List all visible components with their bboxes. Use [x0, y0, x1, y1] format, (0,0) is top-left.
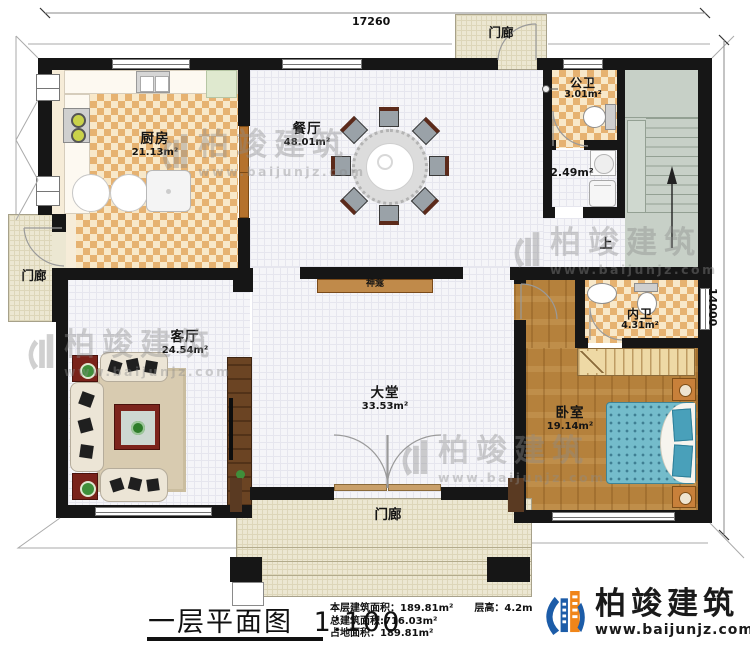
living-name: 客厅	[145, 330, 225, 345]
plan-title-underline	[147, 637, 323, 641]
dining-name: 餐厅	[262, 122, 352, 137]
bedroom-area: 19.14m²	[530, 421, 610, 432]
stairs-return-flight	[627, 120, 646, 213]
wall-porch-left-jamb	[52, 214, 66, 232]
porch-top-label: 门廊	[474, 26, 528, 40]
pillow	[672, 408, 693, 441]
wall-shrine	[300, 267, 463, 279]
story-height-label: 层高：	[474, 603, 504, 614]
footprint-label: 占地面积：	[330, 628, 380, 639]
brand-company: 柏竣建筑	[595, 589, 750, 620]
plant-stand	[72, 473, 98, 500]
plan-title-text: 一层平面图	[148, 607, 293, 638]
kitchen-cabinet-green	[206, 70, 237, 98]
window-left-bay	[36, 74, 60, 101]
wall-bottom-hall	[250, 487, 334, 500]
wall-kitchen-dining	[238, 218, 250, 268]
living-area: 24.54m²	[145, 345, 225, 356]
inner-bath-area: 4.31m²	[612, 321, 668, 331]
kitchen-stove	[63, 108, 90, 143]
porch-left-door-gap	[52, 232, 66, 268]
wall-top	[38, 58, 498, 70]
kitchen-name: 厨房	[110, 132, 200, 147]
bed	[606, 402, 696, 484]
window-bedroom-bottom	[552, 512, 675, 521]
kitchen-island-table	[72, 174, 110, 212]
wall-tv-stub	[233, 276, 253, 292]
coffee-table	[114, 404, 160, 450]
window-kitchen-top	[112, 59, 190, 69]
brand-block: 柏竣建筑 www.baijunjz.com	[543, 584, 750, 642]
living-label: 客厅 24.54m²	[145, 330, 225, 356]
nightstand	[672, 486, 696, 508]
floor-area-label: 本层建筑面积：	[330, 603, 400, 614]
wardrobe	[577, 348, 695, 376]
dining-chair	[331, 156, 351, 176]
porch-column	[487, 557, 530, 582]
public-bath-label: 公卫 3.01m²	[556, 77, 610, 101]
info-line-footprint: 占地面积：189.81m²	[330, 628, 533, 641]
utility-label: 2.49m²	[548, 167, 596, 179]
window-dining-top	[282, 59, 362, 69]
brand-logo-icon	[26, 330, 58, 374]
porch-step-line	[237, 547, 531, 548]
plant-stand	[72, 355, 98, 382]
brand-website: www.baijunjz.com	[595, 622, 750, 638]
dimension-right: 14000	[706, 288, 719, 326]
footprint-value: 189.81m²	[380, 628, 433, 639]
dining-chair	[429, 156, 449, 176]
wall-inner-bath-left	[575, 280, 585, 338]
inner-bath-label: 内卫 4.31m²	[612, 308, 668, 332]
stairs-up-label: 上	[596, 238, 616, 252]
hall-name: 大堂	[345, 386, 425, 401]
wall-public-bath-south	[584, 140, 618, 150]
kitchen-sliding-door	[239, 126, 249, 218]
window-left-bay	[36, 176, 60, 206]
wall-utility-south	[543, 207, 555, 218]
kitchen-sink	[136, 71, 170, 93]
info-line-floor-area: 本层建筑面积：189.81m² 层高：4.2m	[330, 603, 533, 616]
wall-inner-bath-south	[575, 338, 588, 348]
brand-logo-icon	[543, 584, 587, 642]
bedroom-label: 卧室 19.14m²	[530, 406, 610, 432]
plant-icon	[131, 421, 145, 435]
inner-bath-sink	[587, 283, 617, 304]
hall-floor	[252, 267, 514, 500]
kitchen-label: 厨房 21.13m²	[110, 132, 200, 158]
dining-table-center	[377, 154, 393, 170]
porch-column	[230, 557, 262, 582]
wall-inner-bath-south	[622, 338, 698, 348]
total-area-label: 总建筑面积:	[330, 616, 384, 627]
porch-column-post	[508, 478, 524, 512]
floor-area-value: 189.81m²	[400, 603, 453, 614]
info-line-total-area: 总建筑面积:716.03m²	[330, 616, 533, 629]
sofa-top	[100, 352, 168, 382]
sofa-bottom	[100, 468, 168, 502]
wall-kitchen-dining	[238, 70, 250, 126]
public-bath-toilet-tank	[605, 104, 616, 130]
dining-area: 48.01m²	[262, 137, 352, 148]
wall-stairs-left	[617, 70, 625, 215]
public-bath-area: 3.01m²	[556, 90, 610, 100]
wall-kitchen-south	[56, 268, 253, 280]
plan-info-block: 本层建筑面积：189.81m² 层高：4.2m 总建筑面积:716.03m² 占…	[330, 603, 533, 641]
window-living-bottom	[95, 507, 212, 516]
hall-door-panel	[334, 484, 387, 491]
nightstand	[672, 378, 696, 401]
wall-bedroom-left	[514, 267, 526, 284]
kitchen-area: 21.13m²	[110, 147, 200, 158]
porch-left-label: 门廊	[12, 269, 56, 283]
dimension-top: 17260	[352, 15, 390, 28]
shrine-label: 神龛	[352, 280, 398, 290]
stairs-treads	[646, 118, 698, 213]
porch-column-post	[230, 478, 242, 512]
story-height-value: 4.2m	[504, 603, 532, 614]
inner-bath-toilet-tank	[634, 283, 658, 292]
hall-door-panel	[388, 484, 441, 491]
wall-mid-horizontal	[510, 267, 712, 280]
porch-bottom-label: 门廊	[358, 508, 418, 523]
dining-label: 餐厅 48.01m²	[262, 122, 352, 148]
utility-washer	[589, 180, 616, 207]
floor-plan-canvas: 17260 14000 厨房 21.13m² 餐厅 48.01m² 公卫 3.0…	[0, 0, 750, 652]
utility-area: 2.49m²	[548, 167, 596, 179]
public-bath-toilet-bowl	[583, 106, 606, 128]
sofa-left	[70, 382, 104, 472]
kitchen-island-table	[110, 174, 148, 212]
stairs-bottom-line	[627, 212, 698, 213]
dining-chair	[379, 205, 399, 225]
total-area-value: 716.03m²	[384, 616, 437, 627]
bedroom-name: 卧室	[530, 406, 610, 421]
wall-bottom-hall	[441, 487, 517, 500]
hall-area: 33.53m²	[345, 401, 425, 412]
pillow	[672, 444, 693, 477]
dining-chair	[379, 107, 399, 127]
window-bath-top	[563, 59, 603, 69]
wall-public-bath-south	[552, 140, 556, 150]
tv-icon	[229, 398, 233, 460]
hall-label: 大堂 33.53m²	[345, 386, 425, 412]
wall-bath-left	[543, 62, 552, 218]
kitchen-appliance	[146, 170, 191, 212]
